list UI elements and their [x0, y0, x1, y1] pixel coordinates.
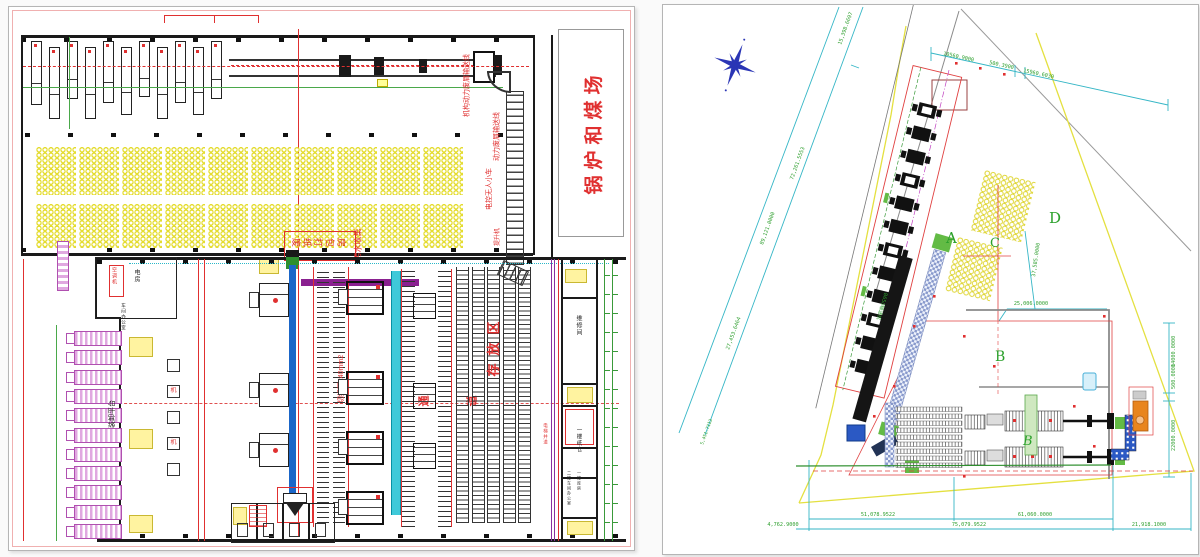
- rack-strip: [438, 269, 452, 527]
- rack-rows: [896, 407, 962, 468]
- north-compass: [705, 31, 765, 99]
- label-paper-store: 一楼纸仓: [575, 427, 581, 467]
- red-line: [204, 259, 205, 541]
- rack-row: [896, 435, 962, 440]
- red-marker: [955, 62, 958, 65]
- pulper-feeder: [249, 442, 259, 458]
- rack-feed-conveyor: [885, 403, 894, 467]
- rack-row: [896, 421, 962, 426]
- red-marker: [979, 67, 982, 70]
- machine-block: [911, 104, 918, 112]
- pulper-unit: [259, 433, 289, 467]
- right-drawing-sheet: 15,398.6697 72,261.5553 89,121.0000 27,4…: [662, 4, 1199, 555]
- lower-hall-bottom-wall: [97, 539, 626, 542]
- dock-edge: [56, 325, 57, 541]
- production-line-1: [965, 411, 1125, 431]
- dim-top-2: 500.3900: [989, 60, 1015, 71]
- machine-block: [911, 125, 932, 142]
- label-loading-platform: 装卸平台: [107, 392, 119, 436]
- pile-block: [337, 147, 377, 195]
- red-marker: [933, 295, 936, 298]
- press-feeder: [338, 499, 348, 515]
- line-shaft: [229, 59, 496, 77]
- truck-cab-icon: [66, 487, 75, 498]
- machine-block: [924, 156, 931, 164]
- cyan-conveyor: [391, 271, 401, 515]
- machine-outline: [211, 41, 222, 99]
- machine-block: [913, 203, 920, 211]
- green-dim-line: [604, 259, 610, 541]
- purple-line: [554, 259, 555, 541]
- truck-cab-icon: [66, 410, 75, 421]
- truck-cab-icon: [66, 507, 75, 518]
- line: [679, 7, 839, 433]
- dim-bottom-1: 51,078.9522: [861, 512, 895, 518]
- machine-squares: 机机: [167, 359, 181, 489]
- rect: [1107, 413, 1114, 429]
- machine-outline: [139, 41, 150, 97]
- fixture: [289, 523, 300, 537]
- machine-block: [905, 149, 926, 166]
- rect: [970, 170, 1035, 242]
- blue-path: [1111, 449, 1129, 460]
- machine-block: [895, 174, 902, 182]
- stair: [129, 515, 153, 533]
- machine-block: [889, 197, 896, 205]
- pile-block: [165, 147, 205, 195]
- label-power-room: 电房: [133, 269, 139, 289]
- machine-square: [167, 411, 180, 424]
- machine-outline: [103, 41, 114, 103]
- label-hoist: 提升机: [492, 217, 504, 257]
- machine-outline: [193, 47, 204, 115]
- building-a: [816, 5, 977, 423]
- pile-block: [79, 204, 119, 248]
- dim-left-small: 5,451.7113: [699, 418, 714, 446]
- label-aircon: 空调机: [111, 267, 116, 293]
- rect: [1031, 455, 1034, 458]
- label-office: 车间办公室: [121, 303, 126, 333]
- machine-block: [919, 179, 926, 187]
- truck-cab-icon: [66, 430, 75, 441]
- press-feeder: [338, 289, 348, 305]
- machine-block: [930, 133, 937, 141]
- machine-block: [872, 267, 879, 275]
- rotated-char: 房: [335, 238, 348, 249]
- press-machine: [346, 491, 384, 525]
- rack-row: [896, 442, 962, 447]
- machine-block: [855, 337, 862, 345]
- pile-block: [380, 147, 420, 195]
- room-divider: [561, 383, 597, 385]
- machine-row: [31, 41, 231, 125]
- red-marker: [993, 365, 996, 368]
- pile-block: [251, 147, 291, 195]
- rect: [1115, 417, 1125, 429]
- pulper-feeder: [249, 382, 259, 398]
- room-divider: [561, 517, 597, 519]
- main-axis-red: [298, 29, 299, 537]
- rect: [987, 450, 1003, 461]
- tank-icon: [1083, 373, 1096, 390]
- rect: [987, 414, 1003, 425]
- room-divider: [282, 503, 284, 541]
- machine-block: [888, 219, 909, 236]
- label-storage-area: 存放区: [483, 295, 499, 395]
- rack-machine: [413, 293, 436, 319]
- pile-block: [122, 204, 162, 248]
- upper-hall-left-wall: [21, 35, 23, 256]
- truck-cab-icon: [66, 468, 75, 479]
- zone-a: A: [945, 229, 957, 247]
- dock-dotted-line: [129, 263, 609, 264]
- orange-machine-drum: [1136, 416, 1144, 424]
- red-marker: [1103, 315, 1106, 318]
- production-line-2: [965, 447, 1125, 467]
- stair: [129, 429, 153, 449]
- rack-strip: [456, 267, 469, 523]
- dim-bottom-right: 21,918.1000: [1132, 522, 1166, 528]
- machine-square: [167, 359, 180, 372]
- dim-right-1: 14000.0000: [1171, 336, 1177, 367]
- press-feeder: [338, 379, 348, 395]
- fixture: [237, 523, 248, 537]
- machine-block: [900, 150, 907, 158]
- truck: [74, 370, 122, 385]
- rack-row: [896, 456, 962, 461]
- zone-b-italic: B: [1022, 434, 1033, 449]
- truck-dock: [64, 331, 122, 543]
- press-machine: [346, 371, 384, 405]
- green-line: [23, 87, 503, 88]
- red-marker: [893, 385, 896, 388]
- machine-square: 机: [167, 385, 180, 398]
- stair: [567, 387, 593, 403]
- left-drawing-sheet: 机构动力废屑输送线 动力废屑输送线 电控无人小车 提升机 锅炉和煤场 废纸打包房…: [8, 6, 635, 551]
- truck: [74, 524, 122, 539]
- machine-block: [936, 109, 943, 117]
- press-machine: [346, 431, 384, 465]
- machine-block: [908, 226, 915, 234]
- pulper-unit: [259, 373, 289, 407]
- blue-hopper: [847, 425, 865, 441]
- zone-b: B: [995, 349, 1005, 365]
- dim-tick: [214, 15, 215, 23]
- dim-right-3: 22000.0000: [1171, 420, 1177, 451]
- truck-cab-icon: [66, 526, 75, 537]
- dim-right-2: 500.0000: [1171, 364, 1177, 389]
- dim-c-area: 37,585.0000: [1031, 242, 1042, 277]
- ladder-conveyor: [506, 91, 524, 265]
- stair: [129, 337, 153, 357]
- zone-d: D: [1049, 209, 1061, 227]
- conveyor-head-green: [286, 257, 299, 265]
- rect: [1013, 419, 1016, 422]
- rect: [1013, 455, 1016, 458]
- machine-block: [906, 127, 913, 135]
- fixture: [315, 523, 326, 537]
- machine-top: [1133, 391, 1146, 399]
- rack-row: [896, 414, 962, 419]
- rect: [1049, 455, 1052, 458]
- dim-bottom-mid: 75,079.9522: [952, 522, 986, 528]
- corridor-outer-wall: [551, 35, 553, 257]
- dim-left-inner: 72,261.5553: [789, 146, 806, 180]
- machine-outline: [31, 41, 42, 105]
- label-agv: 电控无人小车: [484, 154, 496, 224]
- machine-outline: [121, 47, 132, 115]
- rect: [1087, 451, 1092, 463]
- red-marker: [1093, 445, 1096, 448]
- dim-top-left: 15,398.6697: [837, 11, 854, 45]
- upper-hall-bottom-wall: [21, 253, 533, 256]
- stair: [567, 521, 593, 535]
- zone-c: C: [990, 236, 1000, 251]
- machine-block: [849, 360, 856, 368]
- upper-hall-right-wall: [533, 35, 535, 255]
- red-marker: [1003, 73, 1006, 76]
- machine-outline: [49, 47, 60, 119]
- dim-bottom-left: 4,762.9000: [767, 522, 798, 528]
- rack-row: [896, 428, 962, 433]
- dim-bottom-2: 61,060.0000: [1018, 512, 1052, 518]
- machine-block: [861, 314, 868, 322]
- rack-strip: [518, 267, 531, 523]
- rooms-right-wall: [596, 259, 598, 541]
- truck-cab-icon: [66, 372, 75, 383]
- red-line: [198, 259, 199, 541]
- dim-tick: [164, 15, 165, 23]
- label-baling-room: 废纸打包房: [286, 237, 352, 250]
- red-marker: [913, 325, 916, 328]
- pile-block: [294, 147, 334, 195]
- rooms-left-wall: [561, 259, 563, 541]
- red-marker: [963, 335, 966, 338]
- machine-outline: [85, 47, 96, 119]
- marker: [377, 79, 388, 87]
- press-feeder: [338, 439, 348, 455]
- dim-left-lower: 27,453.6464: [725, 316, 742, 350]
- truck-cab-icon: [66, 352, 75, 363]
- blue-conveyor: [289, 265, 296, 503]
- pile-block: [122, 147, 162, 195]
- dim-d-top: 25,006.0000: [1014, 301, 1048, 307]
- rack-machine: [413, 443, 436, 469]
- cabinet: [57, 241, 69, 291]
- purple-line: [551, 259, 552, 541]
- circle: [724, 89, 727, 92]
- pile-block: [36, 147, 76, 195]
- truck: [74, 447, 122, 462]
- conveyor-head: [286, 250, 299, 257]
- rack-row: [896, 407, 962, 412]
- machine-outline: [175, 41, 186, 103]
- line: [851, 65, 859, 68]
- dim-line: [164, 15, 259, 16]
- pile-block: [423, 147, 463, 195]
- lower-hall-bottom-columns: [97, 534, 625, 538]
- cad-screenshot: 机构动力废屑输送线 动力废屑输送线 电控无人小车 提升机 锅炉和煤场 废纸打包房…: [0, 0, 1200, 557]
- label-office-2f: 二楼车间办公室: [567, 471, 571, 511]
- red-line: [23, 259, 24, 541]
- machine-outline: [157, 47, 168, 119]
- rack-row: [896, 449, 962, 454]
- dim-top-1: 10560.9000: [943, 51, 975, 63]
- machine-block: [894, 195, 915, 212]
- site-svg: 15,398.6697 72,261.5553 89,121.0000 27,4…: [663, 5, 1198, 554]
- press-machine: [346, 281, 384, 315]
- truck: [74, 505, 122, 520]
- fixture: [263, 523, 274, 537]
- machine-block: [866, 290, 873, 298]
- room-divider: [561, 297, 597, 299]
- rack-machine: [413, 383, 436, 409]
- machine-block: [878, 244, 885, 252]
- machine-block: [883, 220, 890, 228]
- stair: [565, 269, 587, 283]
- pulper-feeder: [249, 292, 259, 308]
- red-marker: [873, 415, 876, 418]
- truck: [74, 485, 122, 500]
- pile-block: [423, 204, 463, 248]
- circle: [743, 38, 746, 41]
- green-line: [69, 37, 70, 129]
- dim-tick: [258, 15, 259, 23]
- pile-block: [165, 204, 205, 248]
- pile-block: [208, 204, 248, 248]
- truck: [74, 466, 122, 481]
- red-marker: [963, 475, 966, 478]
- label-maintenance: 维修间: [575, 315, 581, 355]
- rect: [1087, 415, 1092, 427]
- pile-block: [208, 147, 248, 195]
- rect: [965, 415, 985, 429]
- truck-cab-icon: [66, 449, 75, 460]
- label-store-1f: 一楼库房: [577, 471, 581, 507]
- red-line: [558, 259, 559, 541]
- rack-strip: [317, 269, 329, 523]
- truck: [74, 350, 122, 365]
- centerline-red: [23, 66, 529, 67]
- truck-cab-icon: [66, 391, 75, 402]
- funnel-top: [283, 493, 307, 503]
- room-divider: [308, 503, 310, 541]
- machine-square: 机: [167, 437, 180, 450]
- red-marker: [1073, 405, 1076, 408]
- green-base-line: [796, 465, 1111, 466]
- rect: [965, 451, 985, 465]
- rect: [1049, 419, 1052, 422]
- truck: [74, 331, 122, 346]
- pile-area: [36, 147, 471, 251]
- green-dim-line: [612, 259, 618, 541]
- coal-pile: [970, 170, 1035, 242]
- pile-block: [79, 147, 119, 195]
- upper-hall-mid-columns: [25, 133, 525, 137]
- rack-strip: [503, 267, 516, 523]
- label-elevator: 电梯井道: [543, 423, 548, 455]
- truck-cab-icon: [66, 333, 75, 344]
- pile-block: [36, 204, 76, 248]
- label-boiler-yard: 锅炉和煤场: [579, 62, 601, 202]
- label-conveyor1: 机构动力废屑输送线: [462, 31, 475, 141]
- room-divider: [561, 405, 597, 407]
- pile-block: [380, 204, 420, 248]
- dim-left-outer: 89,121.0000: [759, 211, 776, 245]
- machine-square: [167, 463, 180, 476]
- pulper-unit: [259, 283, 289, 317]
